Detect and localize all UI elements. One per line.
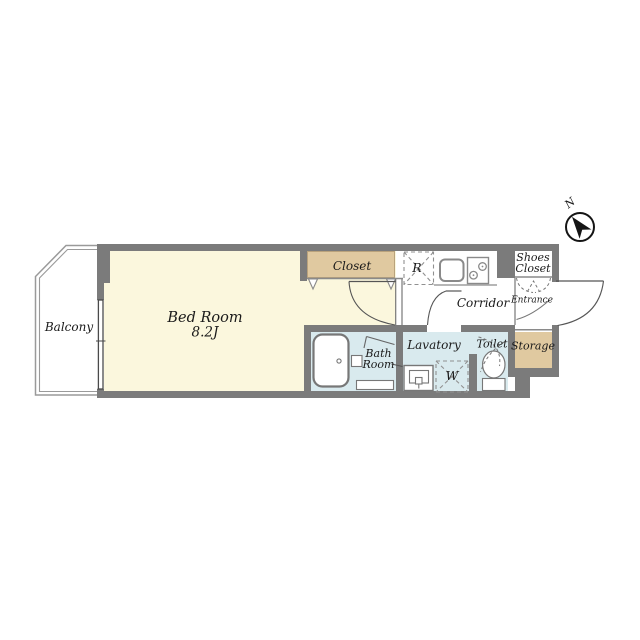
- shoes-closet-doors-icon: [517, 278, 551, 293]
- entrance-label: Entrance: [511, 297, 553, 306]
- toilet-icon: [483, 351, 506, 391]
- stove-icon: [468, 258, 489, 284]
- bath-label-line2: Room: [363, 358, 395, 371]
- bathtub-icon: [314, 335, 349, 387]
- bedroom-door-icon: [349, 279, 402, 326]
- closet-doors-icon: [307, 279, 403, 290]
- floorplan-page: Balcony Bed Room 8.2J Closet R Corridor …: [0, 0, 640, 640]
- corridor-label: Corridor: [457, 297, 509, 309]
- balcony-label: Balcony: [45, 321, 93, 333]
- storage-label: Storage: [511, 341, 555, 352]
- bath-room-label: Bath Room: [363, 348, 395, 370]
- vanity-sink-icon: [404, 366, 433, 391]
- closet-label: Closet: [333, 260, 371, 272]
- floorplan-drawing: [0, 0, 640, 640]
- window-icon: [96, 300, 106, 389]
- bedroom-label: Bed Room: [167, 311, 242, 326]
- lavatory-label: Lavatory: [407, 339, 461, 351]
- sink-icon: [440, 260, 464, 282]
- shoes-closet-label-line2: Closet: [515, 262, 550, 275]
- washer-label: W: [446, 369, 459, 382]
- shoes-closet-label: Shoes Closet: [515, 252, 550, 274]
- compass-icon: [566, 213, 594, 241]
- entrance-door-icon: [556, 281, 604, 326]
- bedroom-size-label: 8.2J: [192, 326, 219, 340]
- toilet-label: Toilet: [476, 339, 507, 350]
- refrigerator-label: R: [412, 262, 421, 275]
